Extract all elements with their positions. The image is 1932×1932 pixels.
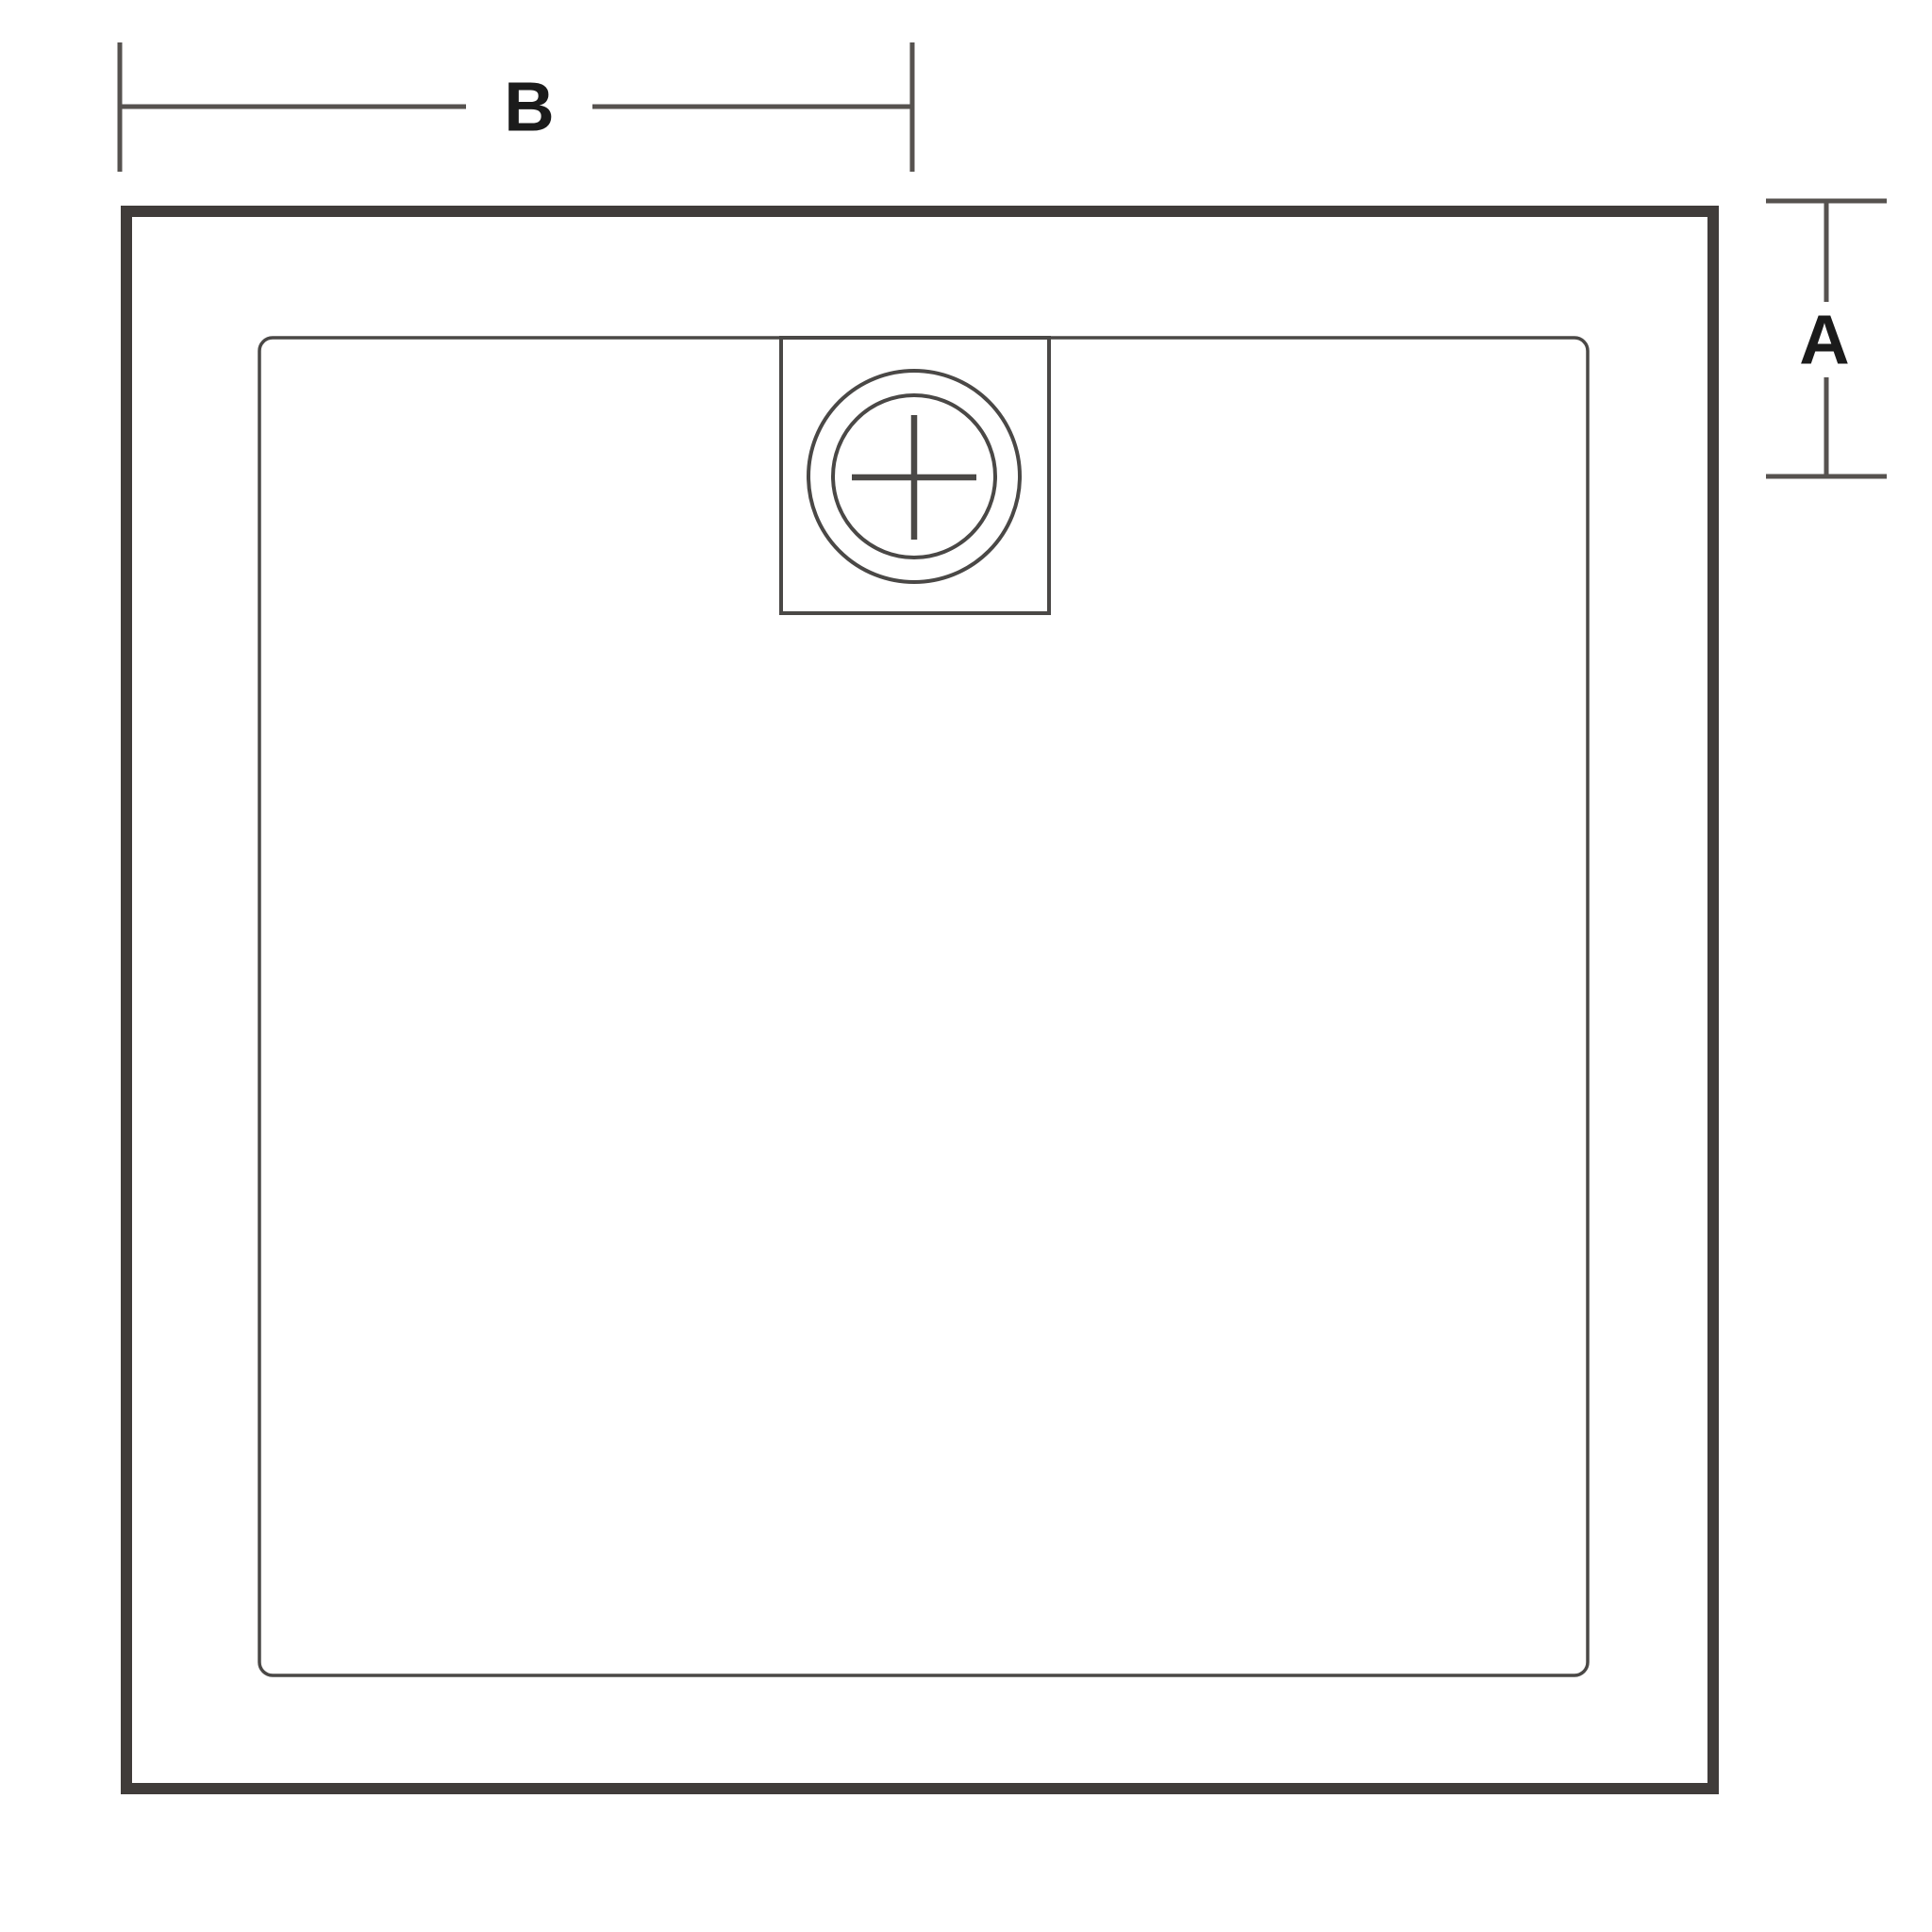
dimension-b: B	[120, 42, 912, 172]
dim-a-label: A	[1799, 301, 1849, 379]
drain-symbol	[781, 338, 1049, 613]
dim-b-label: B	[504, 68, 554, 146]
shower-tray-technical-diagram: B A	[0, 0, 1932, 1932]
dimension-a: A	[1766, 201, 1887, 476]
